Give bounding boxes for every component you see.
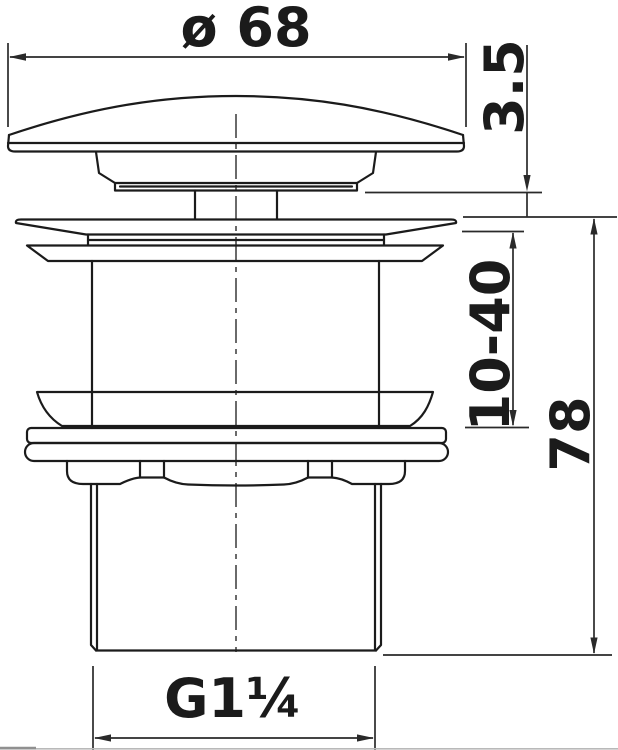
cap-thickness-label: 3.5 [473, 39, 536, 135]
cap-diameter-label: ø 68 [180, 0, 311, 59]
dim-clamp-range: 10-40 [459, 232, 529, 432]
thread-size-label: G1¼ [164, 667, 302, 730]
cone-washer [27, 246, 443, 262]
dim-cap-thickness: 3.5 [365, 39, 542, 217]
bottom-edge-artifact [0, 748, 618, 749]
dim-thread-size: G1¼ [93, 666, 375, 750]
clamp-range-label: 10-40 [459, 259, 522, 432]
bottom-washer [37, 392, 433, 426]
technical-drawing-canvas: ø 68 3.5 10-40 78 G1¼ [0, 0, 618, 750]
basin-waste-drawing: ø 68 3.5 10-40 78 G1¼ [0, 0, 618, 750]
dim-cap-diameter: ø 68 [8, 0, 466, 127]
overall-height-label: 78 [539, 396, 602, 471]
